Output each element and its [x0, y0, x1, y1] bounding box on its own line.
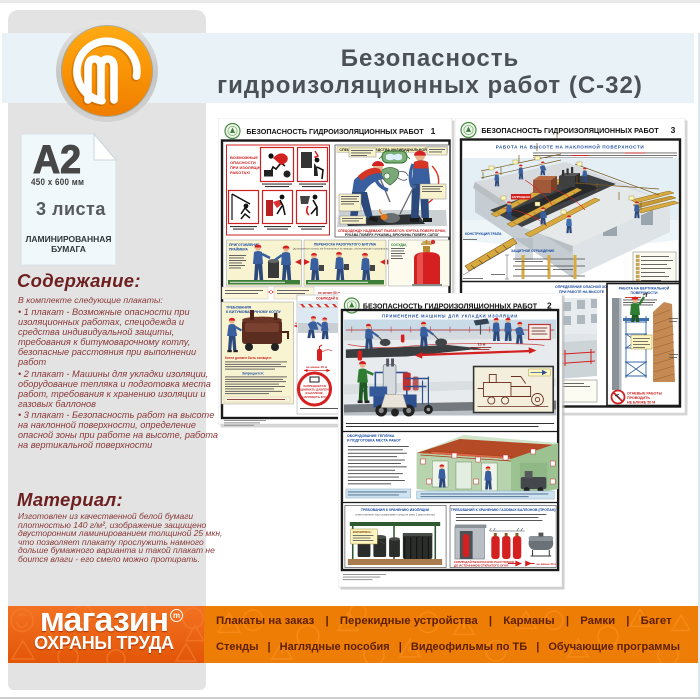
svg-text:ОПРЕДЕЛЕНИЕ ОПАСНОЙ ЗОНЫ: ОПРЕДЕЛЕНИЕ ОПАСНОЙ ЗОНЫ: [555, 285, 613, 289]
svg-text:МАРКИРОВКА:: МАРКИРОВКА:: [353, 530, 372, 534]
svg-text:ТРЕБОВАНИЯ: ТРЕБОВАНИЯ: [226, 306, 252, 310]
svg-text:ТРЕБОВАНИЯ К ХРАНЕНИЮ ГАЗОВЫХ: ТРЕБОВАНИЯ К ХРАНЕНИЮ ГАЗОВЫХ БАЛЛОНОВ (…: [451, 508, 556, 512]
svg-text:РАБОТА НА ВЕРТИКАЛЬНОЙ: РАБОТА НА ВЕРТИКАЛЬНОЙ: [619, 287, 670, 291]
svg-text:ЗАЩИТНОЕ ОГРАЖДЕНИЕ: ЗАЩИТНОЕ ОГРАЖДЕНИЕ: [511, 249, 555, 253]
svg-text:НАГРЕВАТЬ ЕГО: НАГРЕВАТЬ ЕГО: [303, 395, 328, 399]
svg-text:ПРИМЕНЕНИЕ МАШИНЫ ДЛЯ УКЛАД: ПРИМЕНЕНИЕ МАШИНЫ ДЛЯ УКЛАДКИ ИЗОЛЯЦИИ: [382, 313, 518, 318]
svg-text:ПРАЙМЕРА: ПРАЙМЕРА: [229, 247, 248, 251]
svg-text:ЗАПРЕЩЕНО: ЗАПРЕЩЕНО: [512, 195, 531, 199]
svg-text:РАБОТА НА ВЫСОТЕ НА НАКЛОННОЙ: РАБОТА НА ВЫСОТЕ НА НАКЛОННОЙ ПОВЕРХНОСТ…: [496, 143, 645, 150]
svg-text:РАБОТАХ!: РАБОТАХ!: [230, 170, 250, 175]
svg-text:не менее 20 м: не менее 20 м: [537, 562, 557, 566]
svg-text:ОБОРУДОВАНИЕ ТЕПЛЯКА: ОБОРУДОВАНИЕ ТЕПЛЯКА: [347, 434, 395, 438]
svg-text:НЕ БЛИЖЕ 50 М: НЕ БЛИЖЕ 50 М: [627, 401, 655, 405]
svg-text:ТРЕБОВАНИЯ К ХРАНЕНИЮ ИЗОЛЯЦИИ: ТРЕБОВАНИЯ К ХРАНЕНИЮ ИЗОЛЯЦИИ: [361, 508, 430, 512]
svg-text:не менее 40 м: не менее 40 м: [306, 365, 328, 369]
svg-text:Котел должен быть оснащен:: Котел должен быть оснащен:: [225, 356, 272, 360]
svg-text:КОНСТРУКЦИЯ ТРАПА: КОНСТРУКЦИЯ ТРАПА: [465, 232, 502, 236]
svg-text:СОСУДЫ,: СОСУДЫ,: [391, 243, 407, 247]
svg-text:ОГНЕВЫЕ РАБОТЫ: ОГНЕВЫЕ РАБОТЫ: [627, 392, 663, 396]
svg-text:1: 1: [431, 126, 436, 136]
svg-text:БЕЗОПАСНОСТЬ ГИДРОИЗОЛЯЦИОННЫХ: БЕЗОПАСНОСТЬ ГИДРОИЗОЛЯЦИОННЫХ РАБОТ: [246, 127, 424, 136]
svg-text:ПРИ РАБОТЕ НА ВЫСОТЕ: ПРИ РАБОТЕ НА ВЫСОТЕ: [559, 290, 605, 294]
svg-text:10 м: 10 м: [478, 342, 486, 346]
svg-text:ДО ИСТОЧНИКОВ ОТКРЫТОГО ОГНЯ: ДО ИСТОЧНИКОВ ОТКРЫТОГО ОГНЯ: [454, 564, 508, 568]
svg-text:3: 3: [671, 125, 676, 135]
svg-text:БЕЗОПАСНОСТЬ ГИДРОИЗОЛЯЦИОННЫХ: БЕЗОПАСНОСТЬ ГИДРОИЗОЛЯЦИОННЫХ РАБОТ: [481, 126, 659, 135]
svg-text:(допускается только на безопас: (допускается только на безопасных эстака…: [293, 247, 398, 251]
svg-text:(ответственное лицо осматривае: (ответственное лицо осматривает склад не…: [355, 512, 435, 516]
svg-text:Запрещается:: Запрещается:: [242, 372, 264, 376]
svg-text:ПРОВОДИТЬ: ПРОВОДИТЬ: [627, 396, 650, 400]
svg-text:РУКАВА ПОВЕРХ РУКАВИЦ, БРЮЧИНЫ: РУКАВА ПОВЕРХ РУКАВИЦ, БРЮЧИНЫ ПОВЕРХ СА…: [345, 233, 439, 237]
svg-text:И ПОДГОТОВКА МЕСТА РАБОТ: И ПОДГОТОВКА МЕСТА РАБОТ: [347, 439, 402, 443]
